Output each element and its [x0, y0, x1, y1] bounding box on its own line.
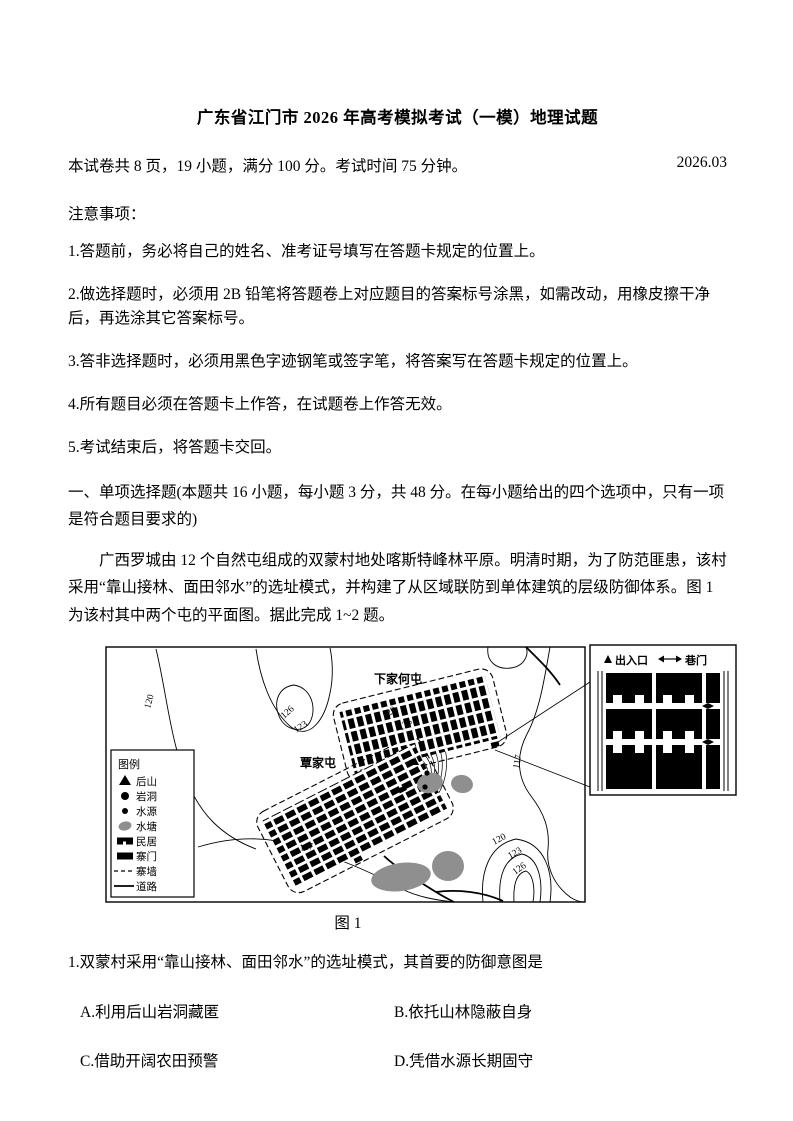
svg-text:寨门: 寨门 [136, 850, 157, 863]
option-a: A.利用后山岩洞藏匿 [80, 1000, 394, 1022]
option-b: B.依托山林隐蔽自身 [394, 1000, 727, 1022]
inset-entrance-label: 出入口 [615, 653, 648, 667]
passage-text: 广西罗城由 12 个自然屯组成的双蒙村地处喀斯特峰林平原。明清时期，为了防范匪患… [68, 547, 727, 628]
notice-item-4: 4.所有题目必须在答题卡上作答，在试题卷上作答无效。 [68, 393, 727, 417]
village-label-xiajiahe: 下家何屯 [374, 671, 422, 686]
option-d: D.凭借水源长期固守 [394, 1049, 727, 1071]
cave-icon [424, 770, 429, 775]
spring-icon [422, 784, 427, 789]
question-1-stem: 1.双蒙村采用“靠山接林、面田邻水”的选址模式，其首要的防御意图是 [68, 951, 727, 976]
inset-plan: 出入口 巷门 [590, 645, 736, 795]
svg-text:水源: 水源 [136, 805, 157, 818]
village-map-figure: 下家何屯 覃家屯 120 123 126 120 123 117 117 120… [98, 637, 740, 907]
svg-text:水塘: 水塘 [136, 820, 157, 833]
exam-page: 广东省江门市 2026 年高考模拟考试（一模）地理试题 本试卷共 8 页，19 … [0, 0, 793, 1121]
inset-alley-gate-label: 巷门 [684, 653, 707, 667]
notice-item-3: 3.答非选择题时，必须用黑色字迹钢笔或签字笔，将答案写在答题卡规定的位置上。 [68, 350, 727, 374]
legend-box: 图例 后山 岩洞 水源 水塘 民居 寨门 寨墙 道路 [111, 750, 194, 897]
svg-text:岩洞: 岩洞 [136, 790, 157, 803]
option-c: C.借助开阔农田预警 [80, 1049, 394, 1071]
svg-text:117: 117 [299, 842, 314, 854]
notice-item-2: 2.做选择题时，必须用 2B 铅笔将答题卷上对应题目的答案标号涂黑，如需改动，用… [68, 283, 727, 331]
figure-caption: 图 1 [98, 911, 598, 933]
figure-1: 下家何屯 覃家屯 120 123 126 120 123 117 117 120… [98, 637, 740, 933]
svg-text:后山: 后山 [136, 776, 157, 788]
legend-house-icon [117, 837, 133, 844]
notice-item-1: 1.答题前，务必将自己的姓名、准考证号填写在答题卡规定的位置上。 [68, 240, 727, 264]
notice-item-5: 5.考试结束后，将答题卡交回。 [68, 436, 727, 460]
svg-text:道路: 道路 [136, 880, 157, 893]
legend-spring-icon [122, 808, 128, 814]
page-title: 广东省江门市 2026 年高考模拟考试（一模）地理试题 [68, 104, 727, 128]
exam-info: 本试卷共 8 页，19 小题，满分 100 分。考试时间 75 分钟。 [68, 154, 467, 176]
exam-info-row: 本试卷共 8 页，19 小题，满分 100 分。考试时间 75 分钟。 2026… [68, 154, 727, 176]
legend-gate-icon [117, 852, 133, 859]
svg-text:寨墙: 寨墙 [136, 865, 157, 878]
svg-text:民居: 民居 [136, 836, 157, 848]
legend-title: 图例 [118, 757, 140, 771]
notice-title: 注意事项： [68, 202, 727, 224]
legend-cave-icon [121, 792, 129, 800]
question-1-options: A.利用后山岩洞藏匿 B.依托山林隐蔽自身 C.借助开阔农田预警 D.凭借水源长… [68, 1000, 727, 1071]
section-header: 一、单项选择题(本题共 16 小题，每小题 3 分，共 48 分。在每小题给出的… [68, 479, 727, 533]
exam-date: 2026.03 [677, 154, 727, 176]
village-label-qinjia: 覃家屯 [300, 755, 336, 770]
